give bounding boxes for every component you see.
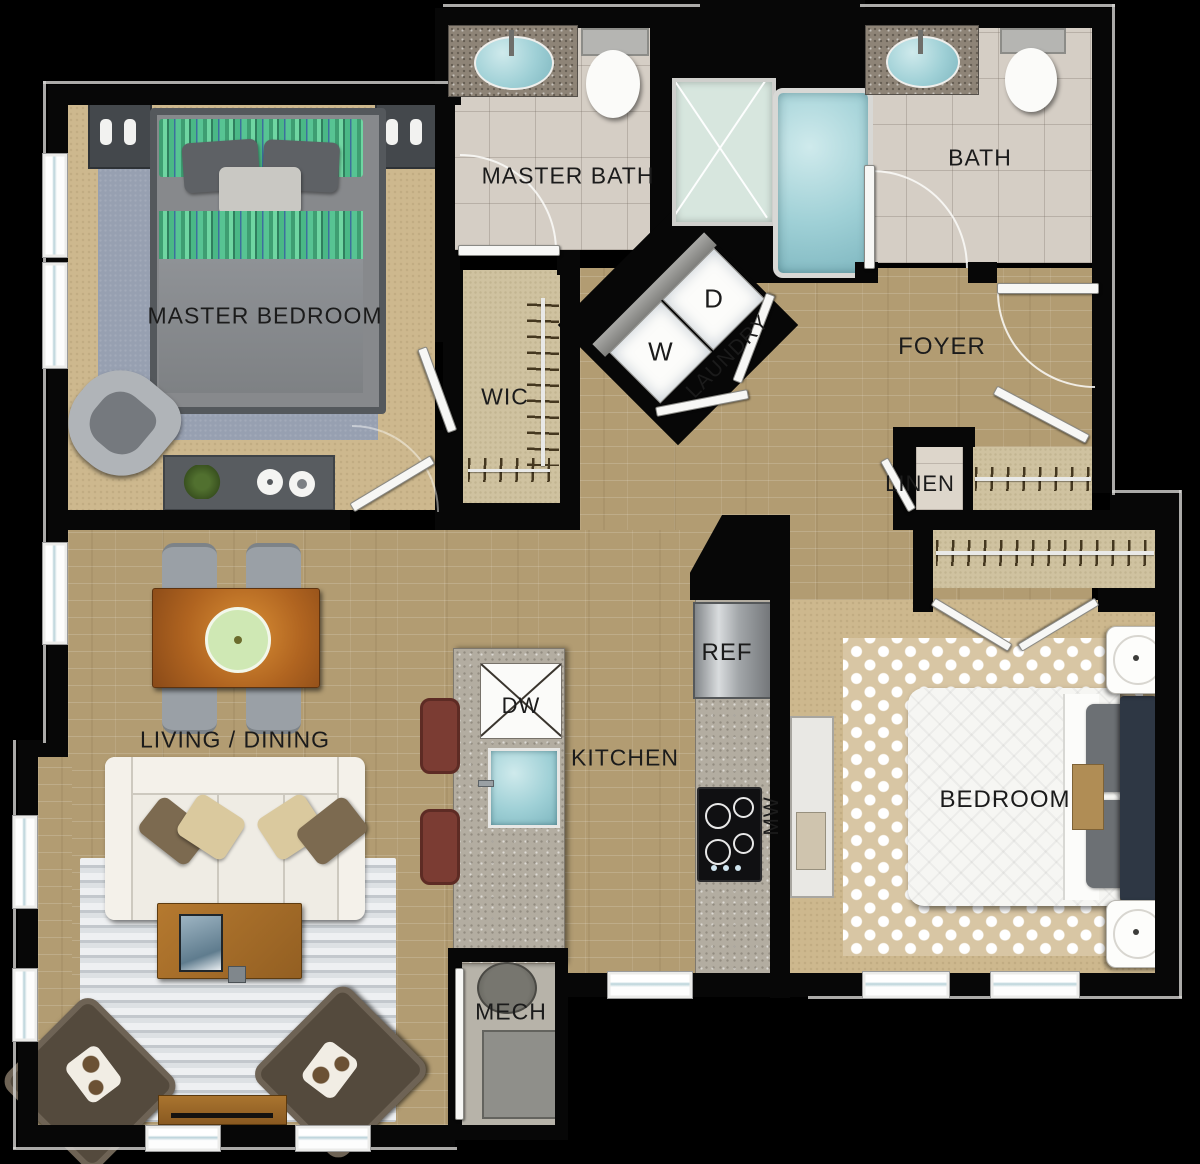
media-console-slot [171,1113,273,1118]
window [145,1125,221,1152]
toilet-bowl [1005,48,1057,112]
accent-pillow [219,167,301,215]
master-armchair-seat [80,382,162,464]
wall [48,510,350,530]
exterior-outline [443,4,700,7]
master-bath-vanity [448,25,578,97]
appliance-label-refrigerator: REF [702,639,753,667]
dresser-decor [796,812,826,870]
bath-door [864,165,875,269]
wall [1092,283,1112,493]
centerpiece-dot [234,636,242,644]
wall [963,447,973,510]
bedroom-dresser [790,716,834,898]
appliance-label-dishwasher: DW [502,693,541,719]
wall [808,973,862,997]
wall [691,973,808,997]
nightstand-dot [1133,929,1139,935]
lamp-icon [410,119,422,145]
room-label-wic: WIC [481,384,529,411]
nightstand-dot [1133,655,1139,661]
window [607,971,693,999]
wall [913,588,933,612]
bed-headboard [1120,696,1157,901]
dining-table [152,588,320,688]
shower [672,78,776,226]
wall [560,270,580,505]
room-label-linen: LINEN [885,471,955,497]
bathtub [773,88,873,278]
master-bed [150,108,386,414]
sink-icon [474,36,554,90]
window [42,262,68,369]
cooktop [697,787,762,882]
master-bath-door [458,245,560,256]
wall [1078,973,1179,997]
wall [1098,588,1155,612]
master-nightstand-left [88,103,152,169]
bed-tray [1072,764,1104,830]
exterior-outline [860,4,1115,7]
burner-icon [733,833,754,854]
wall [443,270,463,505]
wall [437,510,455,530]
cooktop-knob [735,865,741,871]
room-label-bath: BATH [948,145,1012,172]
room-label-master-bedroom: MASTER BEDROOM [147,303,382,330]
exterior-outline [1179,490,1182,998]
decor-bowl-icon [257,469,283,495]
table-centerpiece [205,607,271,673]
room-label-foyer: FOYER [898,333,986,361]
room-label-living-dining: LIVING / DINING [140,727,330,754]
mech-unit [482,1030,558,1119]
dryer-label: D [704,284,724,315]
window [42,542,68,645]
wall [443,503,580,530]
magazine-icon [179,914,223,972]
window [990,971,1080,999]
wall [448,1125,568,1140]
sink-icon [886,36,960,88]
appliance-label-microwave: MW [760,796,784,835]
window [42,153,68,258]
master-bed-green-band [159,211,363,259]
wall [968,262,997,283]
faucet-icon [478,780,494,787]
room-label-kitchen: KITCHEN [571,745,679,772]
window [12,815,38,909]
wall [18,740,38,1125]
floor-plan: W D [0,0,1200,1164]
window [295,1125,371,1152]
bath-vanity [865,25,979,95]
sofa-back [105,757,363,795]
decor-dot [267,479,273,485]
plant-icon [183,465,221,499]
decor-bowl-icon [289,471,315,497]
burner-icon [705,839,731,865]
exterior-outline [1112,490,1181,493]
faucet-icon [509,30,514,56]
coat-closet-rod [975,477,1091,481]
decor-dot [297,479,307,489]
burner-icon [733,797,754,818]
wall [563,973,607,997]
washer-label: W [648,337,674,368]
lamp-icon [100,119,112,145]
bedroom-closet-rod [936,551,1154,555]
cooktop-knob [723,865,729,871]
window [862,971,950,999]
wall [48,85,455,105]
wall [18,1125,455,1147]
faucet-icon [918,30,923,54]
burner-icon [705,803,731,829]
wic-rod [541,298,545,466]
wall [1155,493,1179,997]
sofa-arm-left [105,757,133,920]
exterior-outline [13,1147,457,1150]
exterior-outline [43,81,455,84]
mech-door [455,968,464,1120]
wall [555,948,568,1140]
coaster-icon [228,966,246,983]
wall [1112,510,1155,530]
master-dresser [163,455,335,511]
wall [1092,8,1112,283]
bar-stool [420,809,460,885]
lamp-icon [386,119,398,145]
toilet-bowl [586,50,640,118]
wic-rod [468,469,550,472]
exterior-outline [13,740,16,1149]
bar-stool [420,698,460,774]
room-label-mech: MECH [475,999,547,1026]
entry-door [997,283,1099,294]
wall [948,973,990,997]
cooktop-knob [711,865,717,871]
window [12,968,38,1042]
wall [448,948,568,962]
room-label-master-bath: MASTER BATH [482,163,655,190]
sofa [105,757,363,920]
exterior-outline [1112,4,1115,495]
lamp-icon [124,119,136,145]
kitchen-sink [488,748,560,828]
room-label-bedroom: BEDROOM [939,786,1070,814]
coffee-table [157,903,302,979]
media-console [158,1095,287,1125]
